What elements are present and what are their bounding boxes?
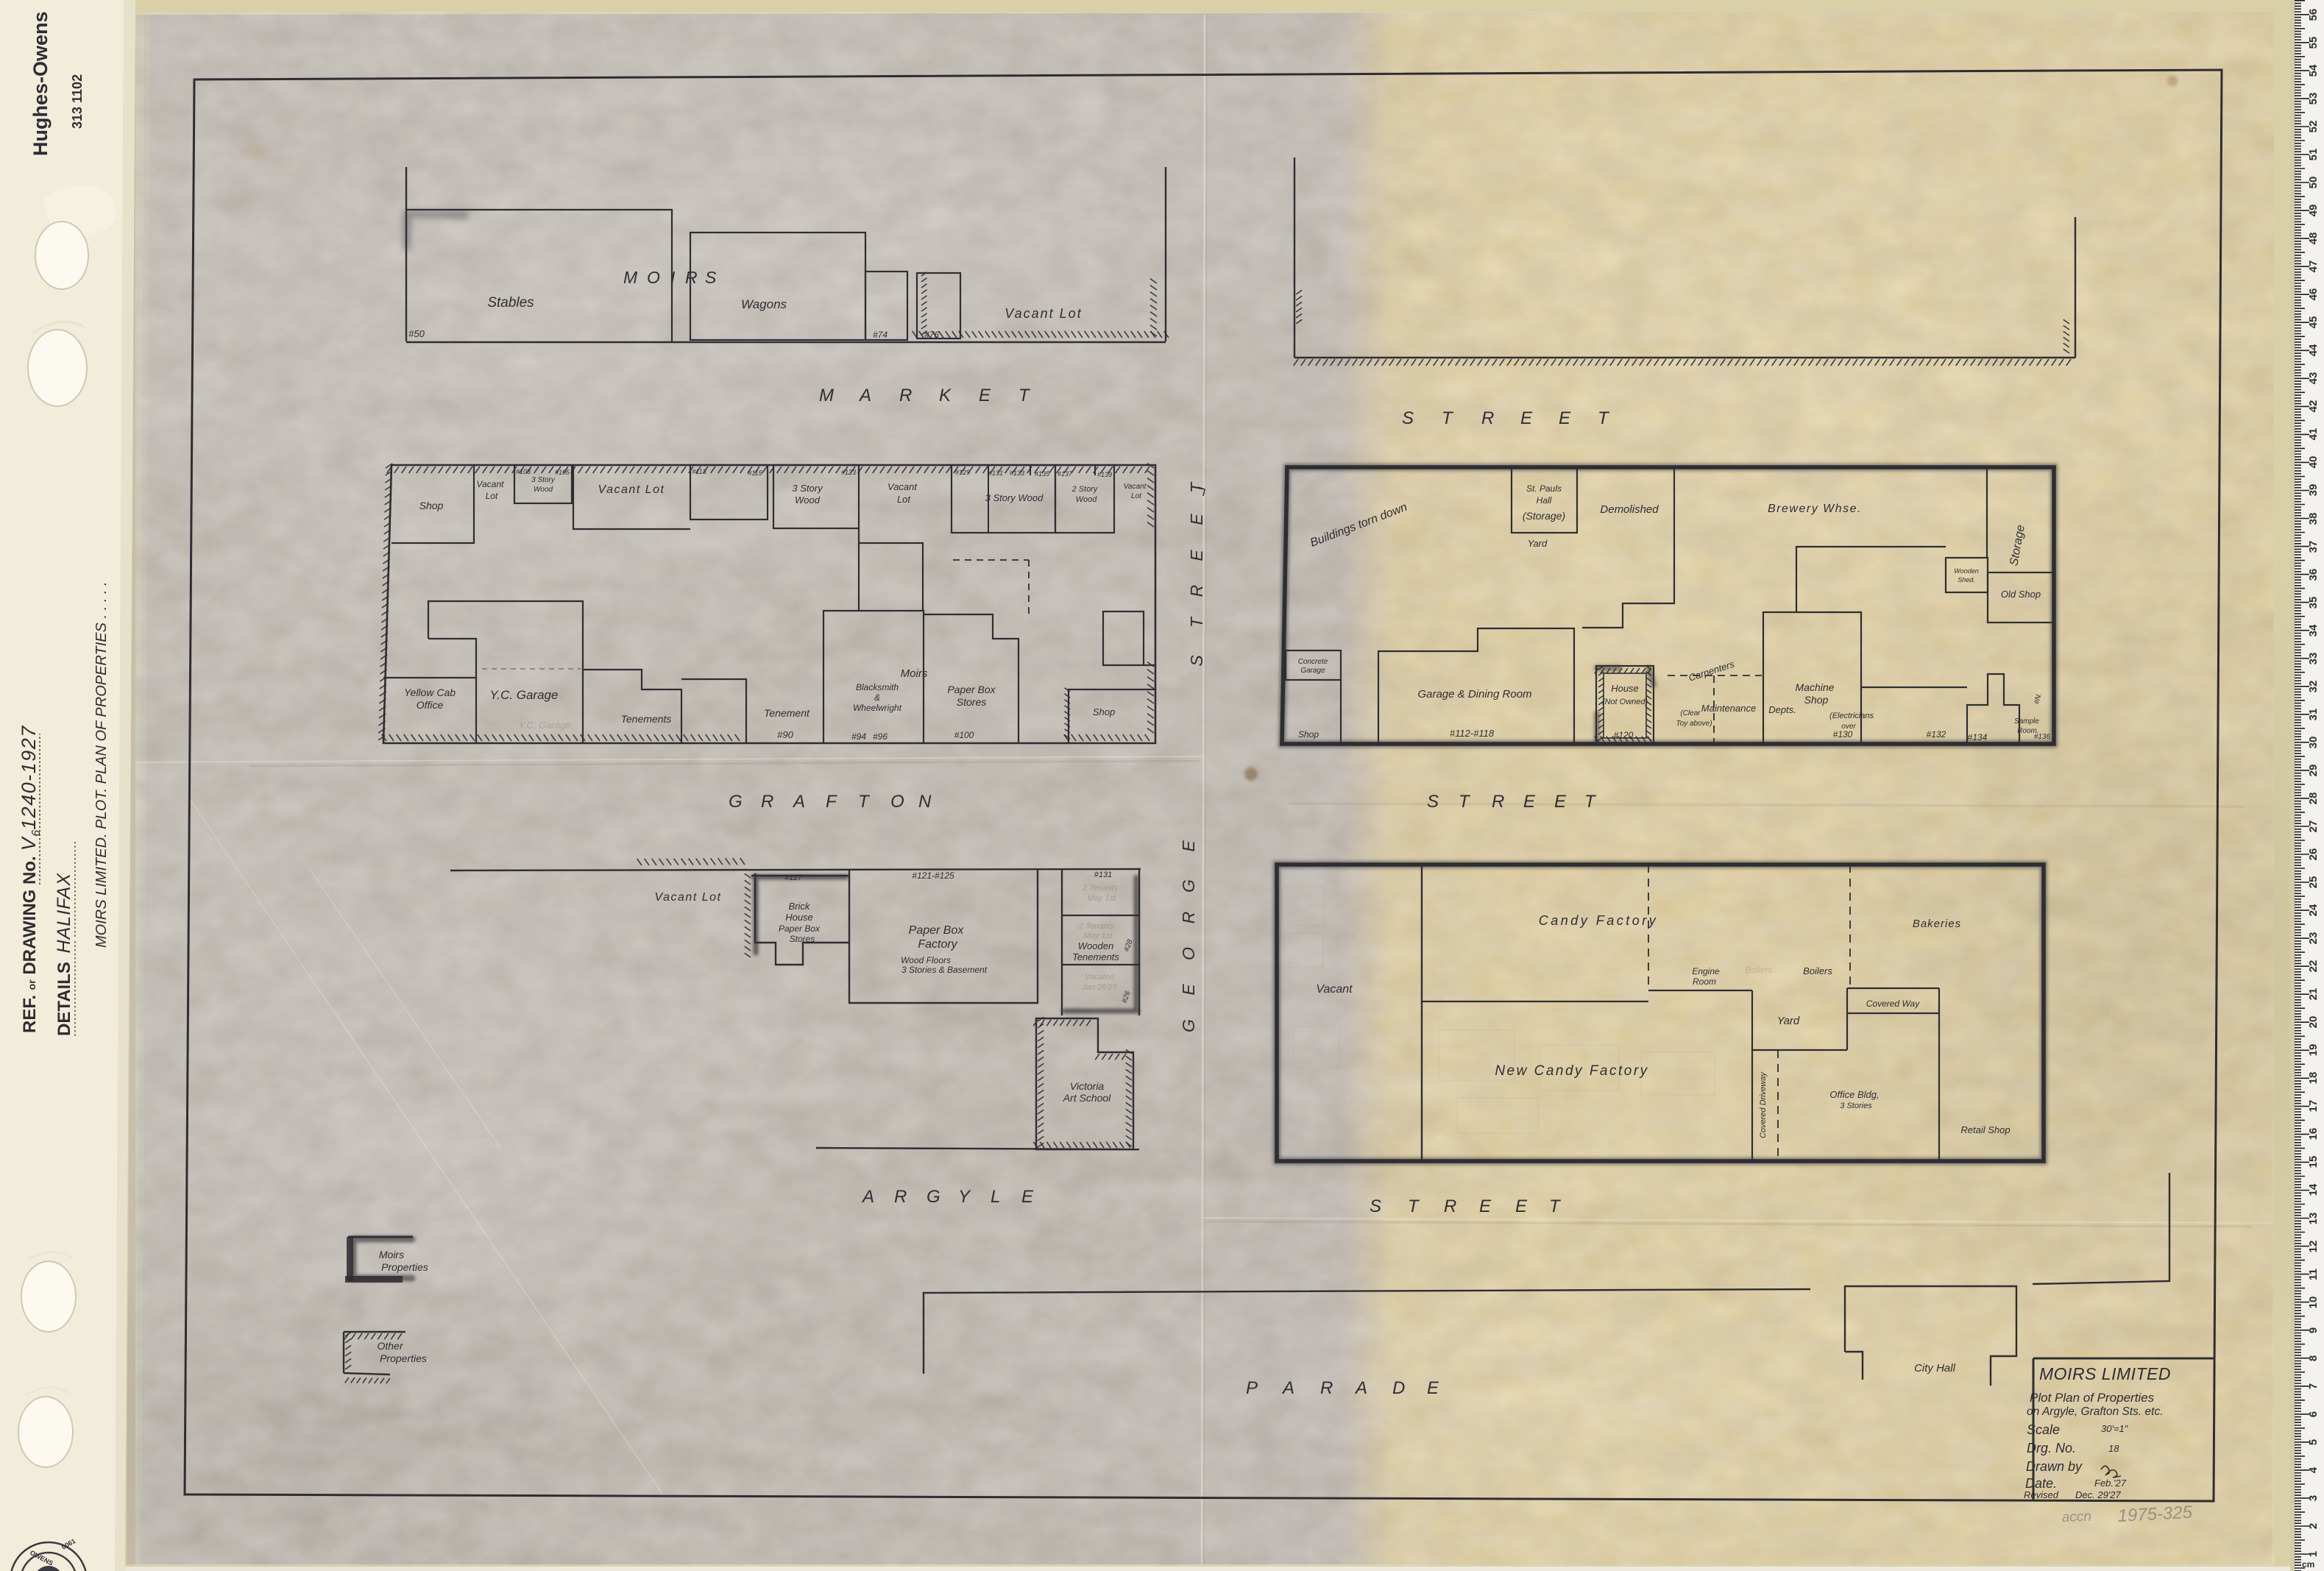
svg-text:44: 44 [2307, 344, 2320, 356]
svg-text:(Clear: (Clear [1680, 709, 1701, 717]
svg-text:30'=1": 30'=1" [2101, 1423, 2129, 1434]
svg-text:Moirs: Moirs [901, 667, 928, 680]
svg-text:Paper Box: Paper Box [909, 924, 965, 937]
svg-text:Drawn by: Drawn by [2026, 1459, 2083, 1474]
svg-text:42: 42 [2307, 400, 2320, 413]
svg-text:4: 4 [2307, 1467, 2320, 1473]
svg-text:Y.C. Garage: Y.C. Garage [518, 720, 570, 731]
svg-text:Paper Box: Paper Box [779, 923, 821, 934]
svg-text:#76: #76 [924, 330, 939, 340]
svg-text:Concrete: Concrete [1298, 658, 1328, 666]
svg-text:on Argyle, Grafton Sts. etc.: on Argyle, Grafton Sts. etc. [2027, 1405, 2164, 1418]
svg-text:Tenements: Tenements [621, 713, 672, 725]
svg-text:House: House [785, 912, 813, 923]
svg-text:Room: Room [1693, 976, 1716, 987]
svg-text:2 Tenants: 2 Tenants [1078, 922, 1114, 931]
svg-text:Garage: Garage [1300, 667, 1325, 675]
svg-text:47: 47 [2307, 260, 2320, 273]
svg-text:Sample: Sample [2014, 717, 2039, 726]
svg-text:16: 16 [2307, 1128, 2320, 1141]
svg-text:Vacant: Vacant [1316, 983, 1353, 996]
svg-text:37: 37 [2307, 541, 2320, 553]
svg-text:T: T [1187, 616, 1206, 628]
svg-text:Date.: Date. [2025, 1476, 2057, 1491]
svg-text:6: 6 [2307, 1411, 2320, 1417]
svg-text:Plot Plan of Properties: Plot Plan of Properties [2030, 1391, 2155, 1405]
svg-text:Lot: Lot [486, 491, 498, 501]
svg-text:40: 40 [2307, 456, 2320, 469]
svg-text:Depts.: Depts. [1768, 704, 1796, 715]
svg-text:Tenements: Tenements [1072, 951, 1119, 962]
svg-text:Wood Floors: Wood Floors [901, 955, 951, 965]
svg-text:Yard: Yard [1528, 538, 1548, 549]
svg-text:10: 10 [2307, 1297, 2320, 1309]
svg-text:3 Stories: 3 Stories [1840, 1102, 1872, 1110]
svg-text:Vacated: Vacated [1085, 973, 1115, 982]
svg-text:Yard: Yard [1777, 1015, 1800, 1027]
svg-text:11: 11 [2307, 1269, 2320, 1280]
svg-text:Vacant Lot: Vacant Lot [1005, 306, 1082, 321]
svg-text:19: 19 [2307, 1044, 2320, 1057]
svg-text:May 1st: May 1st [1084, 932, 1113, 940]
svg-text:E: E [1179, 984, 1198, 996]
svg-text:51: 51 [2307, 149, 2320, 161]
svg-text:55: 55 [2307, 37, 2320, 49]
svg-text:32: 32 [2307, 681, 2320, 693]
svg-text:Stores: Stores [957, 696, 986, 708]
svg-text:#113: #113 [692, 468, 706, 475]
svg-text:31: 31 [2307, 709, 2320, 721]
svg-text:#105: #105 [555, 469, 570, 476]
svg-text:1: 1 [2307, 1551, 2320, 1557]
svg-text:Office Bldg,: Office Bldg, [1829, 1089, 1879, 1100]
svg-text:Scale: Scale [2027, 1422, 2060, 1437]
svg-text:Vacant: Vacant [1124, 483, 1147, 491]
svg-text:Blacksmith: Blacksmith [856, 682, 899, 692]
svg-text:Vacant: Vacant [888, 481, 918, 492]
svg-text:29: 29 [2307, 765, 2320, 777]
svg-text:#131: #131 [988, 469, 1003, 477]
svg-text:Y.C. Garage: Y.C. Garage [490, 688, 559, 702]
svg-text:Engine: Engine [1692, 966, 1720, 976]
svg-text:Vacant: Vacant [477, 479, 505, 489]
svg-text:5: 5 [2307, 1439, 2320, 1445]
svg-text:Toy above): Toy above) [1676, 720, 1712, 728]
svg-text:G: G [1179, 1019, 1198, 1032]
svg-text:Vacant Lot: Vacant Lot [598, 483, 665, 496]
svg-text:#136: #136 [2034, 733, 2051, 741]
svg-text:Covered Driveway: Covered Driveway [1759, 1071, 1768, 1138]
svg-text:46: 46 [2307, 288, 2320, 301]
svg-text:1975-325: 1975-325 [2117, 1503, 2193, 1526]
svg-text:#74: #74 [873, 330, 888, 340]
svg-text:2 Story: 2 Story [1071, 485, 1099, 494]
svg-text:17: 17 [2307, 1100, 2320, 1113]
svg-text:18: 18 [2307, 1072, 2320, 1085]
svg-text:Feb.'27: Feb.'27 [2094, 1478, 2127, 1489]
svg-text:9: 9 [2307, 1327, 2320, 1333]
svg-text:Lot: Lot [1131, 492, 1142, 500]
svg-text:2 Tenants: 2 Tenants [1082, 884, 1118, 893]
svg-text:City Hall: City Hall [1914, 1362, 1956, 1375]
svg-text:3 Stories & Basement: 3 Stories & Basement [901, 965, 988, 975]
svg-text:#131: #131 [1094, 870, 1112, 879]
svg-text:#112-#118: #112-#118 [1450, 728, 1495, 739]
svg-text:21: 21 [2307, 988, 2320, 1001]
svg-text:Old Shop: Old Shop [2001, 589, 2041, 600]
svg-text:O: O [1179, 947, 1198, 960]
svg-text:15: 15 [2307, 1156, 2320, 1169]
svg-text:Dec. 29'27: Dec. 29'27 [2075, 1489, 2122, 1500]
svg-text:3: 3 [2307, 1495, 2320, 1501]
svg-text:8: 8 [2307, 1355, 2320, 1361]
svg-text:24: 24 [2307, 904, 2320, 916]
svg-text:28: 28 [2307, 792, 2320, 805]
svg-text:3 Story Wood: 3 Story Wood [985, 492, 1044, 503]
svg-text:R: R [1187, 585, 1206, 597]
svg-text:3 Story: 3 Story [531, 476, 556, 484]
svg-text:Paper Box: Paper Box [947, 684, 996, 695]
svg-text:50: 50 [2307, 177, 2320, 189]
svg-text:36: 36 [2307, 569, 2320, 581]
svg-text:#139: #139 [1097, 471, 1112, 478]
svg-text:56: 56 [2307, 9, 2320, 21]
svg-text:7: 7 [2307, 1383, 2320, 1389]
svg-text:34: 34 [2307, 624, 2320, 636]
svg-text:#115: #115 [748, 469, 762, 477]
svg-text:Stables: Stables [487, 295, 534, 311]
svg-text:E: E [1179, 840, 1198, 852]
svg-text:House: House [1611, 683, 1639, 694]
svg-text:Wood: Wood [534, 486, 553, 494]
svg-text:26: 26 [2307, 848, 2320, 861]
svg-text:St. Pauls: St. Pauls [1526, 483, 1562, 494]
svg-text:Shed.: Shed. [1958, 576, 1975, 584]
svg-text:27: 27 [2307, 820, 2320, 833]
svg-text:Stores: Stores [790, 934, 815, 944]
svg-text:New Candy Factory: New Candy Factory [1495, 1063, 1648, 1079]
svg-text:MOIRS LIMITED. PLOT. PLAN OF: MOIRS LIMITED. PLOT. PLAN OF PROPERTIES … [93, 581, 110, 948]
svg-text:Shop: Shop [1298, 729, 1319, 740]
svg-text:53: 53 [2307, 93, 2320, 105]
svg-text:2: 2 [2307, 1523, 2320, 1529]
svg-text:49: 49 [2307, 205, 2320, 217]
svg-text:Wood: Wood [795, 494, 821, 506]
svg-text:#130: #130 [1833, 729, 1853, 740]
svg-text:#134: #134 [1968, 732, 1988, 742]
svg-text:48: 48 [2307, 233, 2320, 245]
svg-text:E: E [1187, 550, 1206, 561]
svg-text:13: 13 [2307, 1213, 2320, 1225]
svg-text:#50: #50 [408, 328, 425, 339]
svg-text:#121-#125: #121-#125 [912, 870, 954, 881]
svg-text:Vacant Lot: Vacant Lot [655, 891, 722, 904]
svg-text:39: 39 [2307, 484, 2320, 497]
svg-text:23: 23 [2307, 932, 2320, 945]
svg-text:#133: #133 [1010, 469, 1024, 477]
svg-text:30: 30 [2307, 737, 2320, 749]
svg-text:over: over [1841, 723, 1856, 731]
svg-text:#137: #137 [1058, 470, 1073, 478]
svg-text:MOIRS LIMITED: MOIRS LIMITED [2039, 1364, 2171, 1383]
svg-text:Revised: Revised [2024, 1489, 2059, 1500]
svg-text:E: E [1187, 514, 1206, 525]
svg-text:Properties: Properties [381, 1261, 428, 1273]
svg-text:Wooden: Wooden [1078, 940, 1113, 951]
svg-text:35: 35 [2307, 597, 2320, 609]
svg-text:Office: Office [417, 699, 444, 711]
svg-text:Demolished: Demolished [1600, 503, 1659, 516]
svg-text:#103: #103 [516, 468, 531, 475]
svg-text:(Storage): (Storage) [1523, 510, 1565, 522]
svg-text:43: 43 [2307, 372, 2320, 385]
svg-text:Covered Way: Covered Way [1866, 999, 1920, 1009]
svg-text:Properties: Properties [380, 1352, 427, 1364]
svg-text:Brick: Brick [789, 901, 811, 912]
svg-text:#132: #132 [1927, 729, 1946, 740]
svg-text:Shop: Shop [419, 500, 444, 511]
svg-text:Brewery Whse.: Brewery Whse. [1768, 503, 1862, 515]
svg-text:52: 52 [2307, 121, 2320, 133]
svg-text:Other: Other [377, 1340, 403, 1352]
svg-text:18: 18 [2108, 1443, 2119, 1454]
svg-text:Retail Shop: Retail Shop [1960, 1124, 2010, 1135]
svg-text:45: 45 [2307, 316, 2320, 329]
svg-text:cm: cm [2302, 1559, 2314, 1570]
svg-text:12: 12 [2307, 1241, 2320, 1253]
svg-text:#135: #135 [1035, 470, 1050, 478]
svg-text:313 1102: 313 1102 [70, 74, 85, 129]
svg-text:Boilers: Boilers [1803, 965, 1832, 976]
svg-text:R: R [1179, 912, 1198, 924]
svg-text:54: 54 [2307, 64, 2320, 77]
svg-text:25: 25 [2307, 876, 2320, 889]
svg-text:20: 20 [2307, 1016, 2320, 1029]
svg-text:Hughes-Owens: Hughes-Owens [29, 11, 52, 156]
svg-text:(Electricians: (Electricians [1829, 712, 1874, 720]
svg-text:Yellow Cab: Yellow Cab [404, 687, 456, 698]
svg-text:41: 41 [2307, 428, 2320, 441]
svg-text:#117: #117 [784, 873, 803, 882]
svg-text:Maintenance: Maintenance [1701, 703, 1756, 714]
svg-text:Wooden: Wooden [1954, 567, 1979, 575]
svg-text:(Not Owned): (Not Owned) [1602, 698, 1648, 706]
svg-text:14: 14 [2307, 1183, 2320, 1196]
svg-text:Jan 26'27: Jan 26'27 [1081, 983, 1117, 992]
svg-text:Machine: Machine [1796, 681, 1835, 693]
svg-text:Art School: Art School [1063, 1092, 1111, 1104]
svg-text:T: T [1187, 481, 1206, 493]
svg-text:&: & [874, 692, 880, 703]
svg-text:#129: #129 [955, 469, 970, 476]
svg-text:33: 33 [2307, 653, 2320, 665]
svg-text:Victoria: Victoria [1070, 1080, 1105, 1092]
svg-text:Shop: Shop [1804, 694, 1829, 706]
svg-text:3 Story: 3 Story [792, 483, 823, 494]
svg-text:Candy Factory: Candy Factory [1539, 913, 1659, 928]
svg-text:Factory: Factory [918, 938, 957, 951]
svg-text:Wagons: Wagons [741, 297, 787, 311]
svg-text:Tenement: Tenement [764, 707, 810, 719]
svg-text:Lot: Lot [897, 494, 911, 505]
svg-text:accn: accn [2061, 1509, 2091, 1525]
svg-text:Boilers: Boilers [1746, 965, 1773, 975]
svg-text:#120: #120 [1614, 730, 1634, 740]
svg-text:Drg. No.: Drg. No. [2027, 1441, 2076, 1455]
svg-text:S: S [1187, 655, 1206, 667]
svg-text:22: 22 [2307, 960, 2320, 973]
svg-text:Shop: Shop [1093, 706, 1115, 717]
svg-text:38: 38 [2307, 513, 2320, 525]
svg-text:#123: #123 [841, 469, 856, 476]
svg-text:G: G [1179, 879, 1198, 893]
svg-text:Hall: Hall [1537, 495, 1552, 506]
svg-text:Wheelwright: Wheelwright [853, 703, 902, 713]
svg-text:Wood: Wood [1076, 495, 1098, 504]
svg-text:Garage & Dining Room: Garage & Dining Room [1417, 688, 1531, 701]
svg-text:May 1st: May 1st [1088, 894, 1116, 903]
svg-text:Bakeries: Bakeries [1913, 918, 1961, 930]
svg-text:Moirs: Moirs [379, 1249, 404, 1260]
